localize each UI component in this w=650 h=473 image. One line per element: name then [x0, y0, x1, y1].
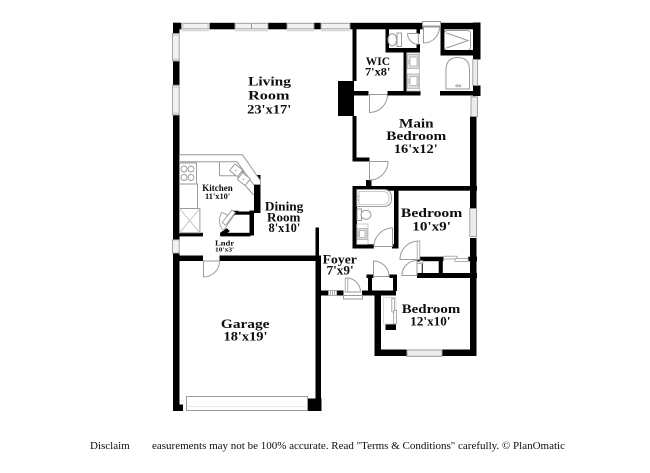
svg-text:easurements may not be 100% ac: easurements may not be 100% accurate. Re… [152, 440, 565, 452]
svg-text:10'x9': 10'x9' [412, 218, 451, 233]
svg-text:Living: Living [248, 73, 291, 88]
svg-text:Room: Room [248, 87, 290, 102]
svg-text:11'x10': 11'x10' [205, 191, 230, 201]
svg-text:7'x8': 7'x8' [365, 66, 390, 78]
svg-text:Disclaim: Disclaim [90, 440, 130, 452]
svg-text:7'x9': 7'x9' [327, 263, 354, 278]
svg-text:18'x19': 18'x19' [224, 329, 268, 344]
svg-text:16'x12': 16'x12' [394, 141, 438, 156]
svg-text:23'x17': 23'x17' [247, 101, 291, 116]
svg-text:8'x10': 8'x10' [269, 220, 301, 235]
svg-text:12'x10': 12'x10' [410, 314, 450, 329]
svg-text:10'x3': 10'x3' [215, 247, 234, 254]
